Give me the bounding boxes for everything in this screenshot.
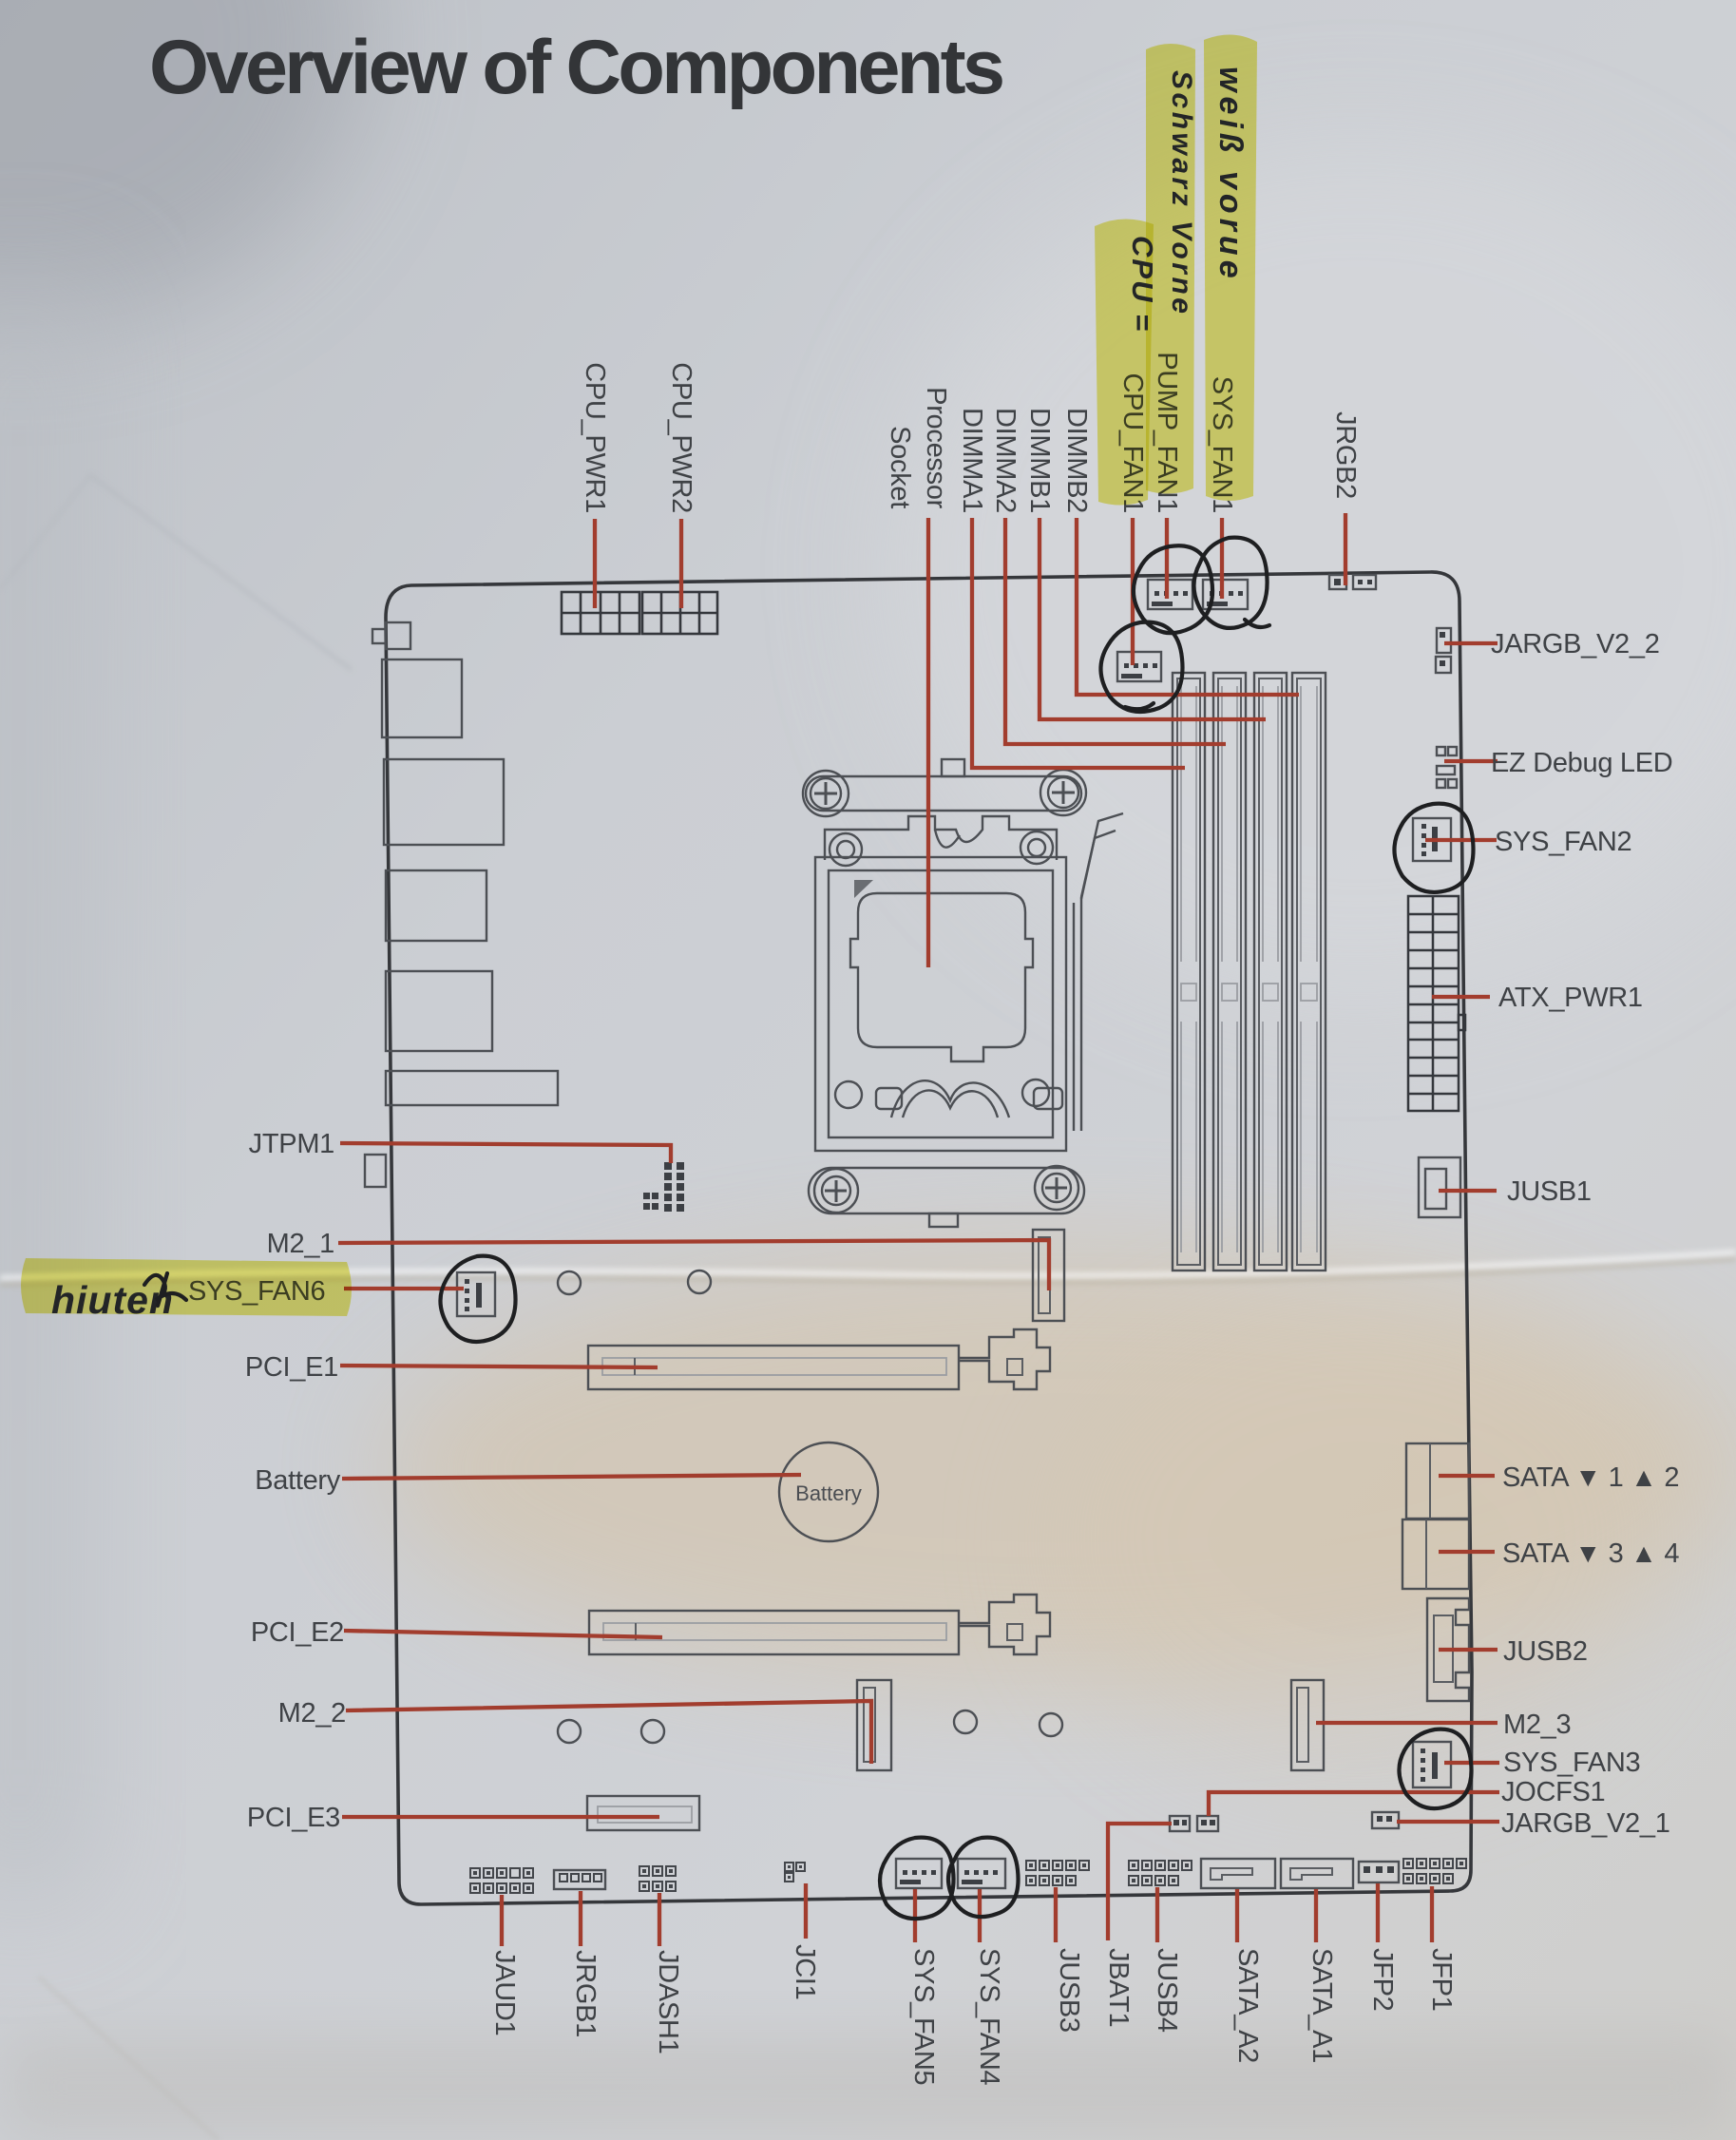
svg-text:JRGB2: JRGB2: [1330, 411, 1361, 499]
svg-text:JOCFS1: JOCFS1: [1501, 1777, 1605, 1807]
svg-text:SATA_A1: SATA_A1: [1307, 1948, 1337, 2063]
svg-text:SATA ▼ 1 ▲ 2: SATA ▼ 1 ▲ 2: [1502, 1462, 1679, 1493]
svg-text:PCI_E3: PCI_E3: [247, 1803, 340, 1833]
svg-text:JARGB_V2_1: JARGB_V2_1: [1501, 1808, 1670, 1839]
svg-text:Socket: Socket: [885, 426, 915, 508]
svg-text:hiuten: hiuten: [51, 1278, 174, 1322]
svg-text:JRGB1: JRGB1: [570, 1950, 601, 2037]
svg-text:EZ Debug LED: EZ Debug LED: [1491, 748, 1672, 778]
svg-text:JAUD1: JAUD1: [489, 1950, 520, 2035]
svg-text:weiß vorue: weiß vorue: [1212, 67, 1249, 283]
svg-text:Schwarz Vorne: Schwarz Vorne: [1166, 70, 1197, 316]
svg-text:DIMMA2: DIMMA2: [990, 408, 1021, 513]
svg-text:CPU_PWR2: CPU_PWR2: [666, 362, 696, 513]
svg-text:Battery: Battery: [795, 1481, 862, 1505]
svg-text:CPU_PWR1: CPU_PWR1: [580, 362, 610, 513]
svg-text:JFP2: JFP2: [1367, 1948, 1398, 2012]
svg-text:JARGB_V2_2: JARGB_V2_2: [1491, 629, 1660, 659]
svg-text:JUSB4: JUSB4: [1152, 1948, 1182, 2033]
svg-text:JCI1: JCI1: [790, 1944, 820, 1999]
svg-text:JDASH1: JDASH1: [653, 1950, 683, 2054]
svg-text:JUSB3: JUSB3: [1054, 1948, 1084, 2033]
svg-text:DIMMB1: DIMMB1: [1024, 408, 1055, 513]
svg-text:M2_2: M2_2: [278, 1698, 346, 1729]
svg-text:JUSB1: JUSB1: [1507, 1176, 1592, 1207]
svg-text:SYS_FAN4: SYS_FAN4: [974, 1948, 1004, 2085]
svg-text:Overview of Components: Overview of Components: [149, 25, 1002, 110]
svg-text:DIMMA1: DIMMA1: [957, 408, 987, 513]
svg-text:JUSB2: JUSB2: [1503, 1636, 1588, 1667]
svg-text:M2_1: M2_1: [267, 1229, 334, 1259]
svg-text:JBAT1: JBAT1: [1103, 1948, 1134, 2027]
svg-text:PCI_E1: PCI_E1: [245, 1352, 338, 1383]
svg-text:Processor: Processor: [921, 387, 951, 508]
svg-text:SATA_A2: SATA_A2: [1232, 1948, 1263, 2063]
svg-text:Battery: Battery: [255, 1465, 341, 1496]
svg-text:CPU =: CPU =: [1126, 236, 1159, 333]
svg-text:JFP1: JFP1: [1426, 1948, 1457, 2012]
svg-text:M2_3: M2_3: [1503, 1710, 1571, 1740]
svg-text:SYS_FAN5: SYS_FAN5: [908, 1948, 939, 2085]
svg-text:SATA ▼ 3 ▲ 4: SATA ▼ 3 ▲ 4: [1502, 1538, 1679, 1569]
svg-text:DIMMB2: DIMMB2: [1061, 408, 1092, 513]
svg-text:JTPM1: JTPM1: [249, 1129, 334, 1159]
svg-text:SYS_FAN2: SYS_FAN2: [1495, 827, 1631, 857]
svg-text:SYS_FAN3: SYS_FAN3: [1503, 1748, 1640, 1778]
svg-text:PCI_E2: PCI_E2: [251, 1617, 344, 1648]
svg-text:ATX_PWR1: ATX_PWR1: [1498, 983, 1643, 1013]
